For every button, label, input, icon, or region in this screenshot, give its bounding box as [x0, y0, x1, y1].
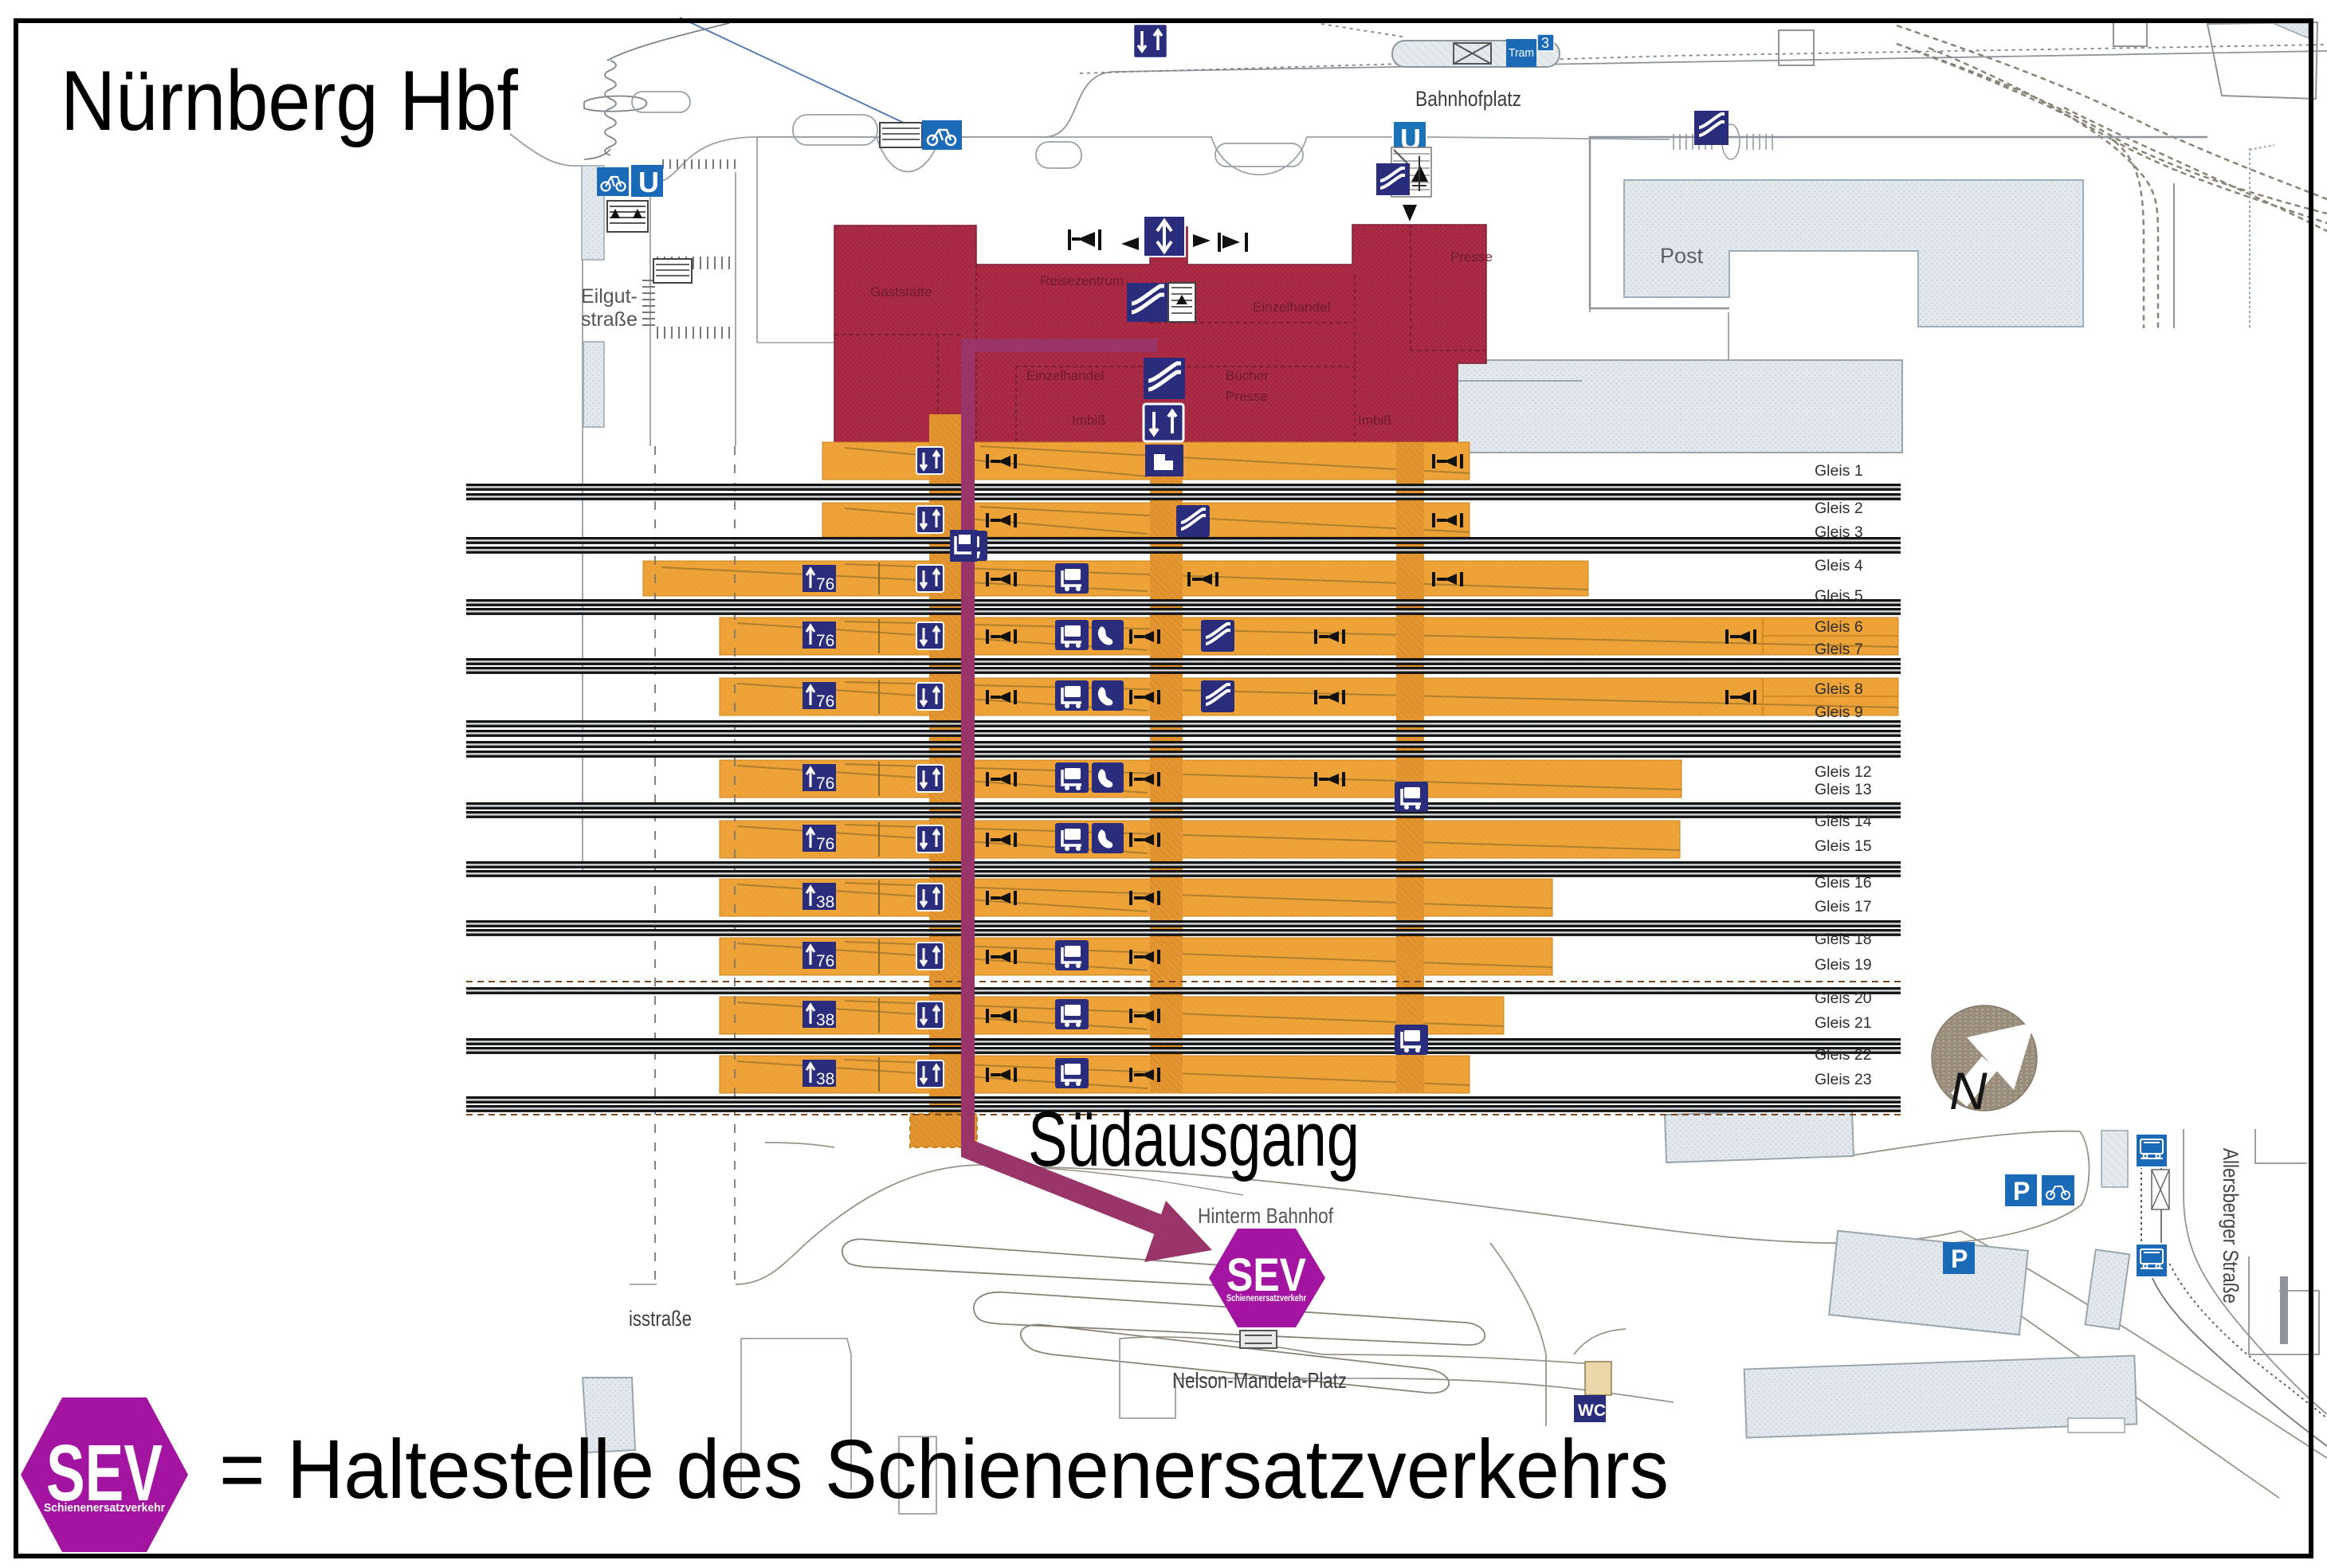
svg-text:Gleis 9: Gleis 9 [1815, 704, 1863, 721]
svg-text:Einzelhandel: Einzelhandel [1253, 300, 1330, 315]
svg-text:Gleis 23: Gleis 23 [1815, 1071, 1872, 1088]
svg-text:Einzelhandel: Einzelhandel [1026, 368, 1104, 383]
svg-text:Hinterm Bahnhof: Hinterm Bahnhof [1198, 1204, 1333, 1228]
svg-text:76: 76 [816, 575, 834, 594]
svg-text:Südausgang: Südausgang [1028, 1096, 1360, 1182]
svg-text:Gleis 13: Gleis 13 [1815, 781, 1872, 798]
svg-text:Gleis 15: Gleis 15 [1815, 837, 1872, 855]
svg-text:Gleis 14: Gleis 14 [1815, 813, 1872, 830]
svg-text:= Haltestelle des Schienenersa: = Haltestelle des Schienenersatzverkehrs [219, 1423, 1669, 1516]
svg-text:P: P [2013, 1177, 2030, 1205]
svg-text:Eilgut-: Eilgut- [581, 285, 638, 308]
svg-text:Gleis 21: Gleis 21 [1815, 1014, 1872, 1032]
svg-text:Imbiß: Imbiß [1072, 413, 1106, 428]
svg-text:3: 3 [1541, 35, 1549, 51]
svg-text:Schienenersatzverkehr: Schienenersatzverkehr [44, 1501, 165, 1515]
svg-text:straße: straße [581, 308, 638, 331]
svg-text:Schienenersatzverkehr: Schienenersatzverkehr [1226, 1294, 1306, 1303]
svg-text:Post: Post [1660, 244, 1704, 268]
svg-text:Gleis 2: Gleis 2 [1815, 500, 1863, 517]
svg-text:38: 38 [816, 893, 834, 911]
svg-text:Gleis 6: Gleis 6 [1815, 618, 1863, 636]
svg-text:Gaststätte: Gaststätte [870, 284, 932, 300]
svg-text:Gleis 1: Gleis 1 [1815, 462, 1863, 480]
svg-text:isstraße: isstraße [629, 1307, 692, 1331]
svg-text:Gleis 3: Gleis 3 [1815, 523, 1863, 541]
svg-text:Nelson-Mandela-Platz: Nelson-Mandela-Platz [1172, 1368, 1347, 1393]
svg-text:Presse: Presse [1226, 389, 1268, 404]
svg-text:Bahnhofplatz: Bahnhofplatz [1415, 87, 1521, 111]
svg-text:Tram: Tram [1509, 46, 1534, 60]
svg-text:Gleis 8: Gleis 8 [1815, 680, 1863, 698]
svg-text:Gleis 16: Gleis 16 [1815, 874, 1872, 892]
svg-text:Reisezentrum: Reisezentrum [1040, 273, 1124, 288]
svg-text:Gleis 4: Gleis 4 [1815, 557, 1863, 574]
svg-text:WC: WC [1578, 1401, 1606, 1420]
svg-text:Gleis 12: Gleis 12 [1815, 763, 1872, 781]
svg-text:U: U [638, 166, 659, 198]
svg-text:P: P [1951, 1245, 1968, 1273]
svg-text:Imbiß: Imbiß [1358, 413, 1392, 428]
svg-text:Gleis 20: Gleis 20 [1815, 990, 1872, 1007]
svg-text:Nürnberg Hbf: Nürnberg Hbf [61, 53, 518, 148]
svg-text:Allersberger Straße: Allersberger Straße [2219, 1148, 2243, 1303]
svg-text:Gleis 18: Gleis 18 [1815, 931, 1872, 948]
svg-text:Bücher: Bücher [1226, 368, 1269, 383]
svg-text:Gleis 19: Gleis 19 [1815, 956, 1872, 974]
svg-text:Gleis 7: Gleis 7 [1815, 641, 1863, 658]
svg-text:Gleis 22: Gleis 22 [1815, 1046, 1872, 1064]
svg-text:N: N [1949, 1061, 1988, 1120]
svg-text:Presse: Presse [1450, 249, 1493, 265]
svg-text:Gleis 5: Gleis 5 [1815, 587, 1863, 605]
svg-text:Gleis 17: Gleis 17 [1815, 898, 1872, 915]
